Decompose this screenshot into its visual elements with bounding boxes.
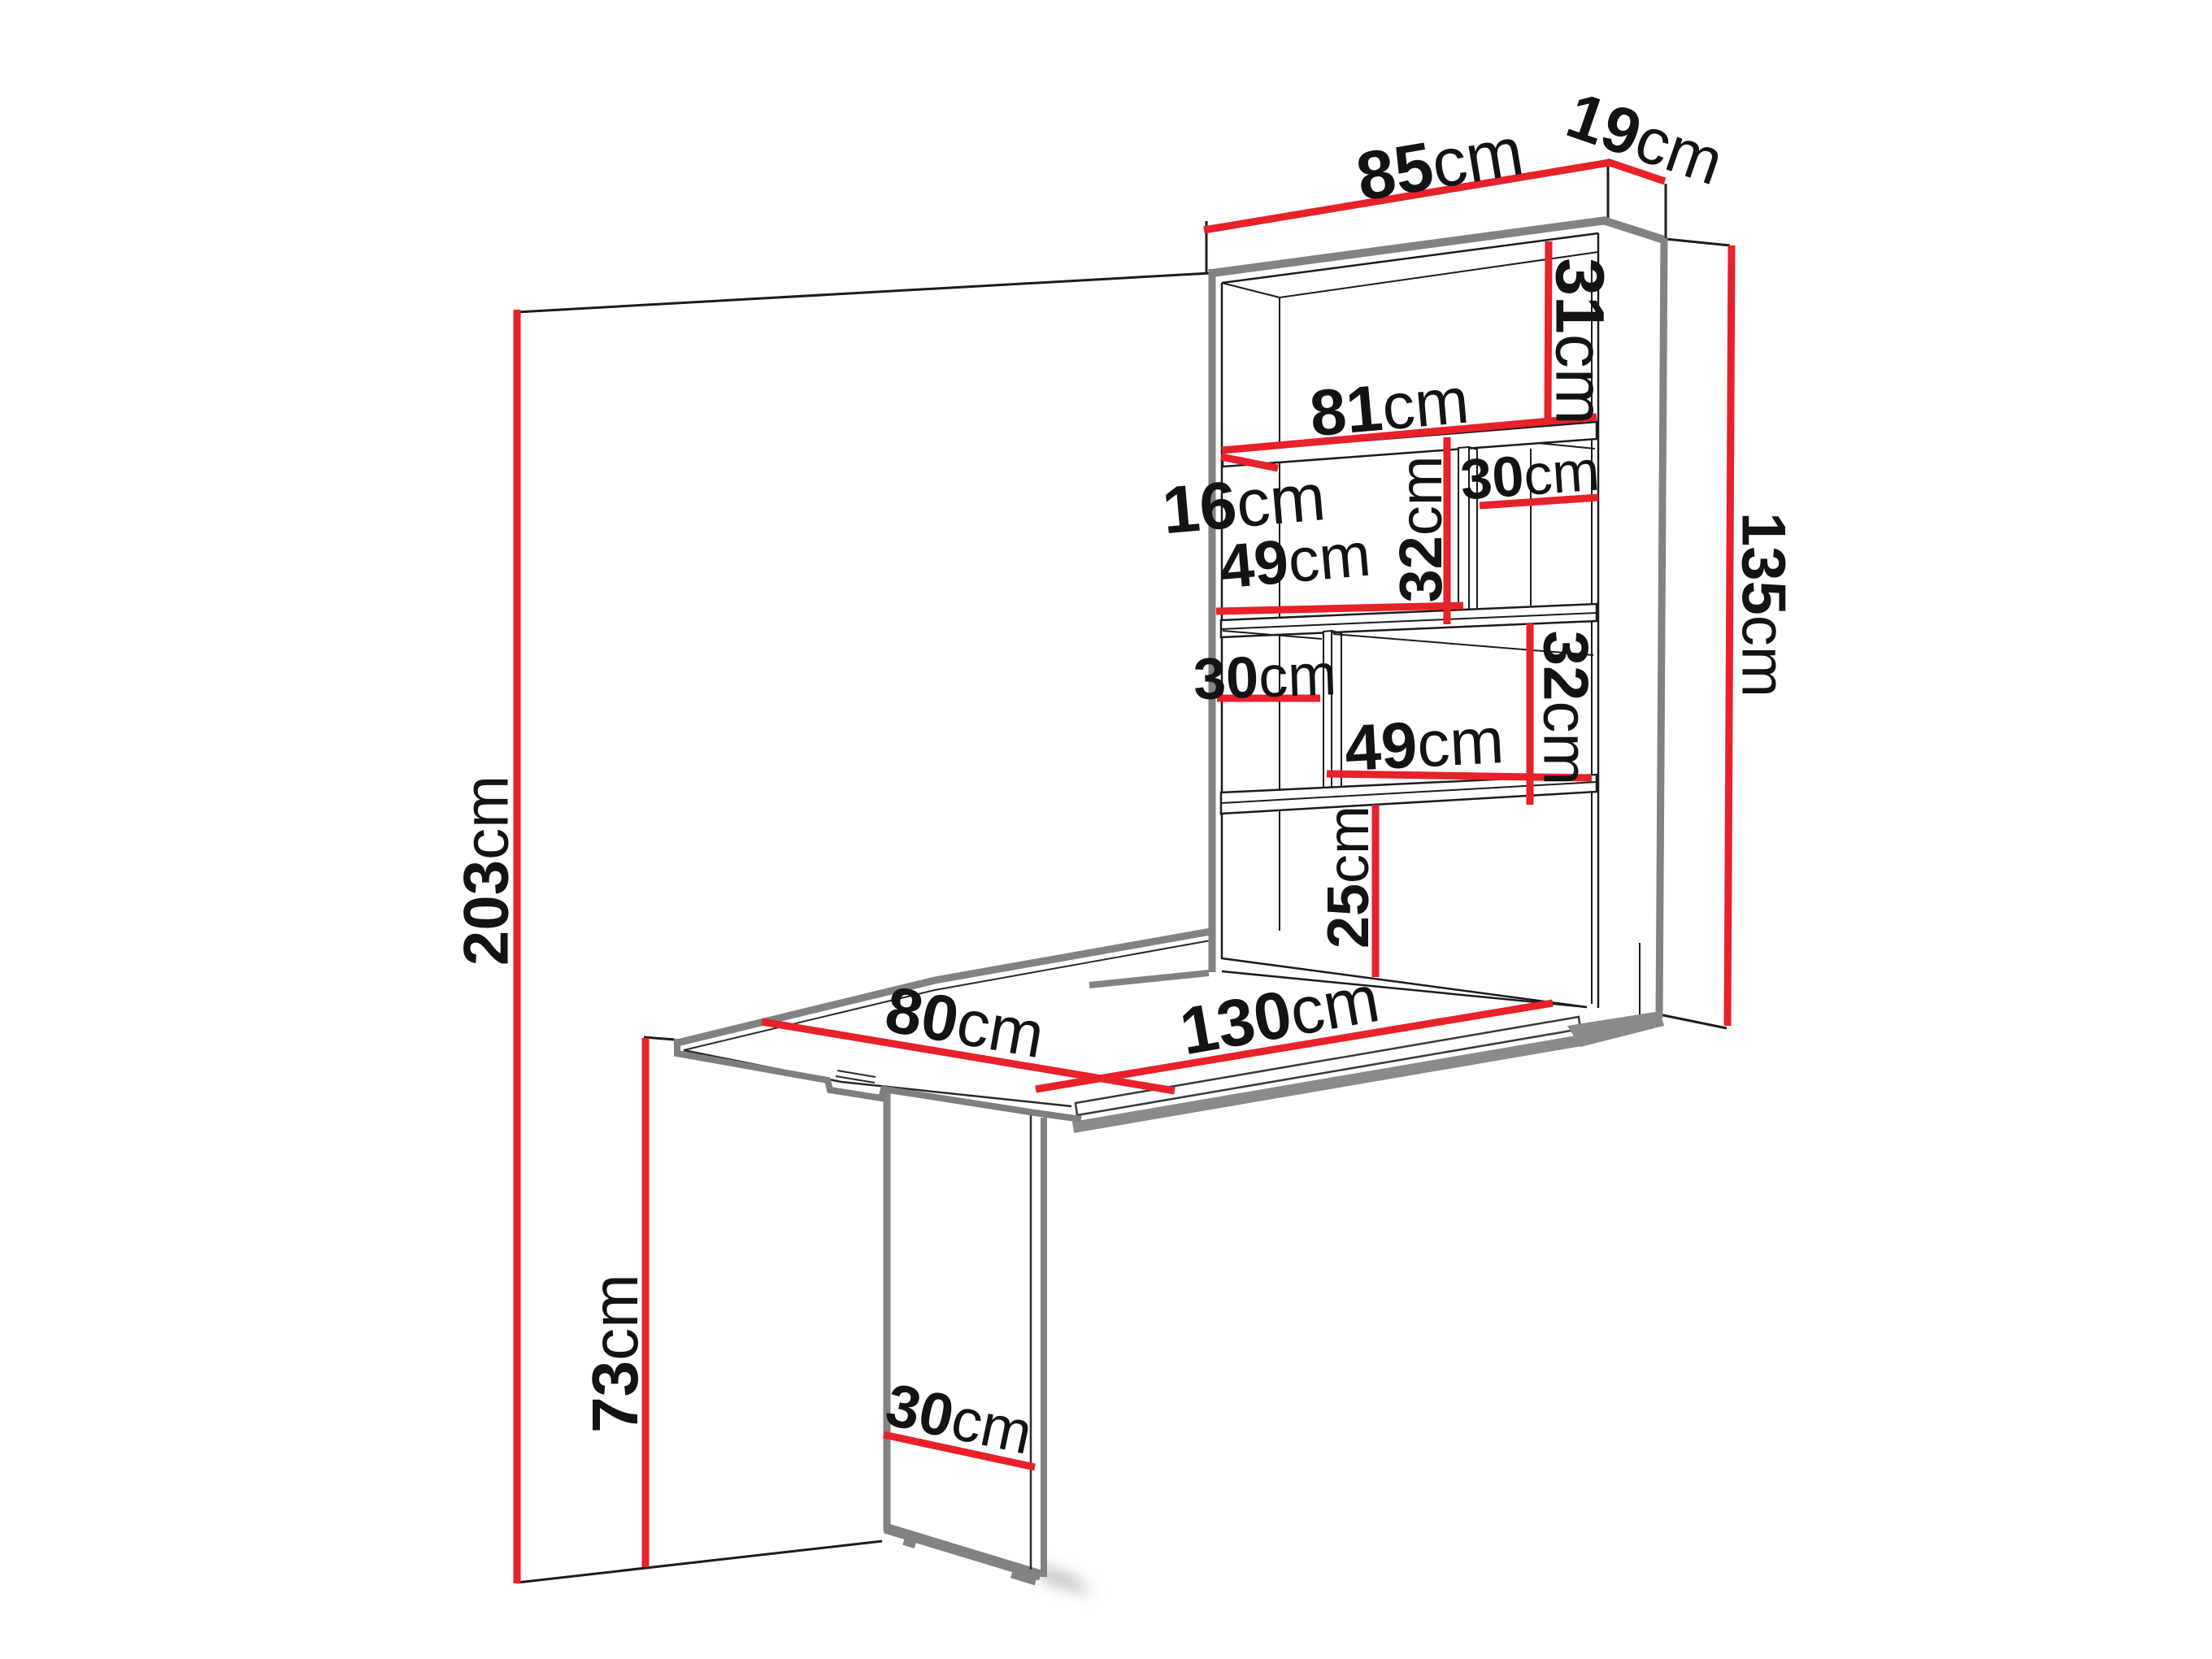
- svg-text:73cm: 73cm: [579, 1274, 651, 1433]
- svg-text:49cm: 49cm: [1217, 520, 1374, 602]
- svg-text:30cm: 30cm: [1458, 439, 1601, 512]
- svg-text:32cm: 32cm: [1387, 456, 1454, 603]
- svg-text:49cm: 49cm: [1343, 704, 1506, 784]
- svg-text:32cm: 32cm: [1531, 631, 1602, 786]
- svg-text:81cm: 81cm: [1307, 364, 1472, 450]
- svg-text:25cm: 25cm: [1316, 806, 1381, 949]
- svg-text:31cm: 31cm: [1542, 258, 1619, 424]
- svg-text:135cm: 135cm: [1728, 512, 1797, 697]
- svg-text:203cm: 203cm: [450, 775, 521, 966]
- svg-text:30cm: 30cm: [1193, 642, 1338, 712]
